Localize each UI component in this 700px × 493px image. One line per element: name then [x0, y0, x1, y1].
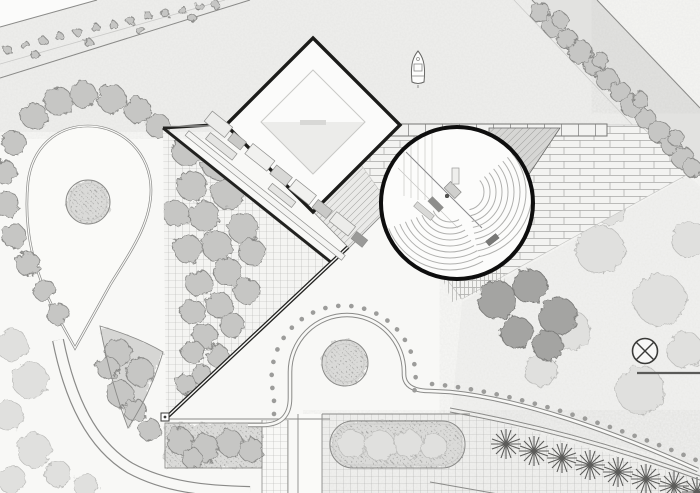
amphitheater-detail-circle	[381, 126, 533, 279]
courtyard-bridge	[300, 120, 326, 125]
survey-marker-icon	[633, 339, 658, 364]
planting-bed-west	[165, 423, 263, 468]
site-plan-drawing	[0, 0, 700, 493]
loop-planter	[66, 180, 110, 224]
arch-planter	[322, 340, 368, 386]
site-plan-page	[0, 0, 700, 493]
grid-paving-strip	[262, 420, 288, 493]
planting-bed-stadium	[330, 421, 465, 468]
promenade-cross-path	[298, 414, 322, 493]
